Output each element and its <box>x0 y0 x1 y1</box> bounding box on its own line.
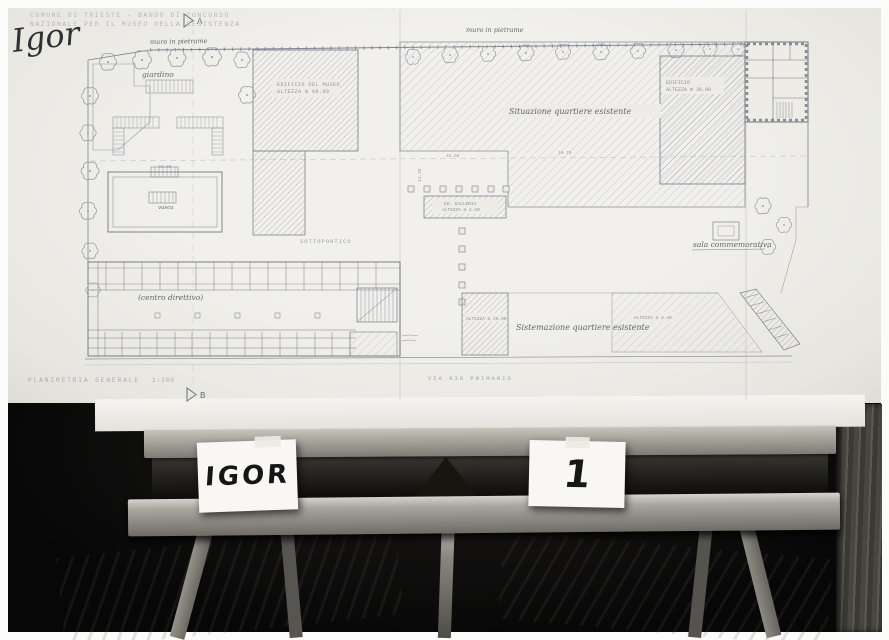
tall-building-label-2: ALTEZZA m 30.00 <box>666 87 711 93</box>
entry-name-text: IGOR <box>204 459 291 492</box>
wall-label-left: muro in pietrame <box>150 37 208 46</box>
quarter-existing-top-label: Situazione quartiere esistente <box>509 107 631 116</box>
dim-3: 14.40 <box>417 168 423 182</box>
portico-label: SOTTOPORTICO <box>300 238 352 245</box>
marker-b-label: B <box>200 391 206 401</box>
tall-building-label-1: EDIFICIO <box>666 80 690 86</box>
wall-label-center: muro in pietrame <box>466 26 524 34</box>
tape <box>566 437 590 449</box>
plan-caption-title: PLANIMETRIA GENERALE <box>28 377 140 384</box>
directional-centre-label: (centro direttivo) <box>138 293 203 302</box>
photograph-of-competition-panel: COMUNE DI TRIESTE - BANDO DI CONCORSO NA… <box>0 0 889 640</box>
existing-quarter: Situazione quartiere esistente EDIFICIO … <box>400 42 745 207</box>
section-marker-b: B <box>187 388 206 401</box>
memorial-hall-label: sala commemorativa <box>693 240 772 249</box>
site-plan-drawing: A B EDIFICIO DEL MUSEO ALTEZZA m 08. <box>0 0 889 640</box>
entry-name-card: IGOR <box>197 439 298 512</box>
museum-label-2: ALTEZZA m 08.00 <box>277 89 330 95</box>
gallery-label-2: ALTEZZA m 2.50 <box>442 207 480 213</box>
height-3-40-label: ALTEZZA m 3.40 <box>634 315 672 321</box>
pool: vasca <box>108 167 222 232</box>
gallery-label-1: ED. GALLERIA <box>444 201 477 207</box>
museum-building: EDIFICIO DEL MUSEO ALTEZZA m 08.00 <box>253 50 358 235</box>
height-20-label: ALTEZZA m 20.00 <box>466 316 507 322</box>
pool-label: vasca <box>158 205 174 211</box>
panel-number-card: 1 <box>528 440 625 508</box>
street-label: VIA RIO PRIMARIO <box>428 375 513 382</box>
plan-caption-scale: 1:200 <box>152 377 175 384</box>
panel-number-text: 1 <box>561 452 593 496</box>
dim-4: 20.05 <box>158 164 172 170</box>
gallery-building: ED. GALLERIA ALTEZZA m 2.50 <box>408 186 509 305</box>
street-lines <box>85 356 792 365</box>
museum-label-1: EDIFICIO DEL MUSEO <box>277 82 340 88</box>
memorial-hall: sala commemorativa <box>692 222 772 250</box>
directional-centre-building: (centro direttivo) <box>88 262 418 356</box>
tape <box>255 436 281 448</box>
quarter-existing-bottom-label: Sistemazione quartiere esistente <box>516 323 650 332</box>
corner-building <box>745 42 808 122</box>
south-quarter: ALTEZZA m 20.00 ALTEZZA m 3.40 Sistemazi… <box>462 289 800 355</box>
dim-2: 19.70 <box>558 150 572 156</box>
garden-label: giardino <box>142 70 174 79</box>
dim-1: 45.60 <box>446 153 460 159</box>
